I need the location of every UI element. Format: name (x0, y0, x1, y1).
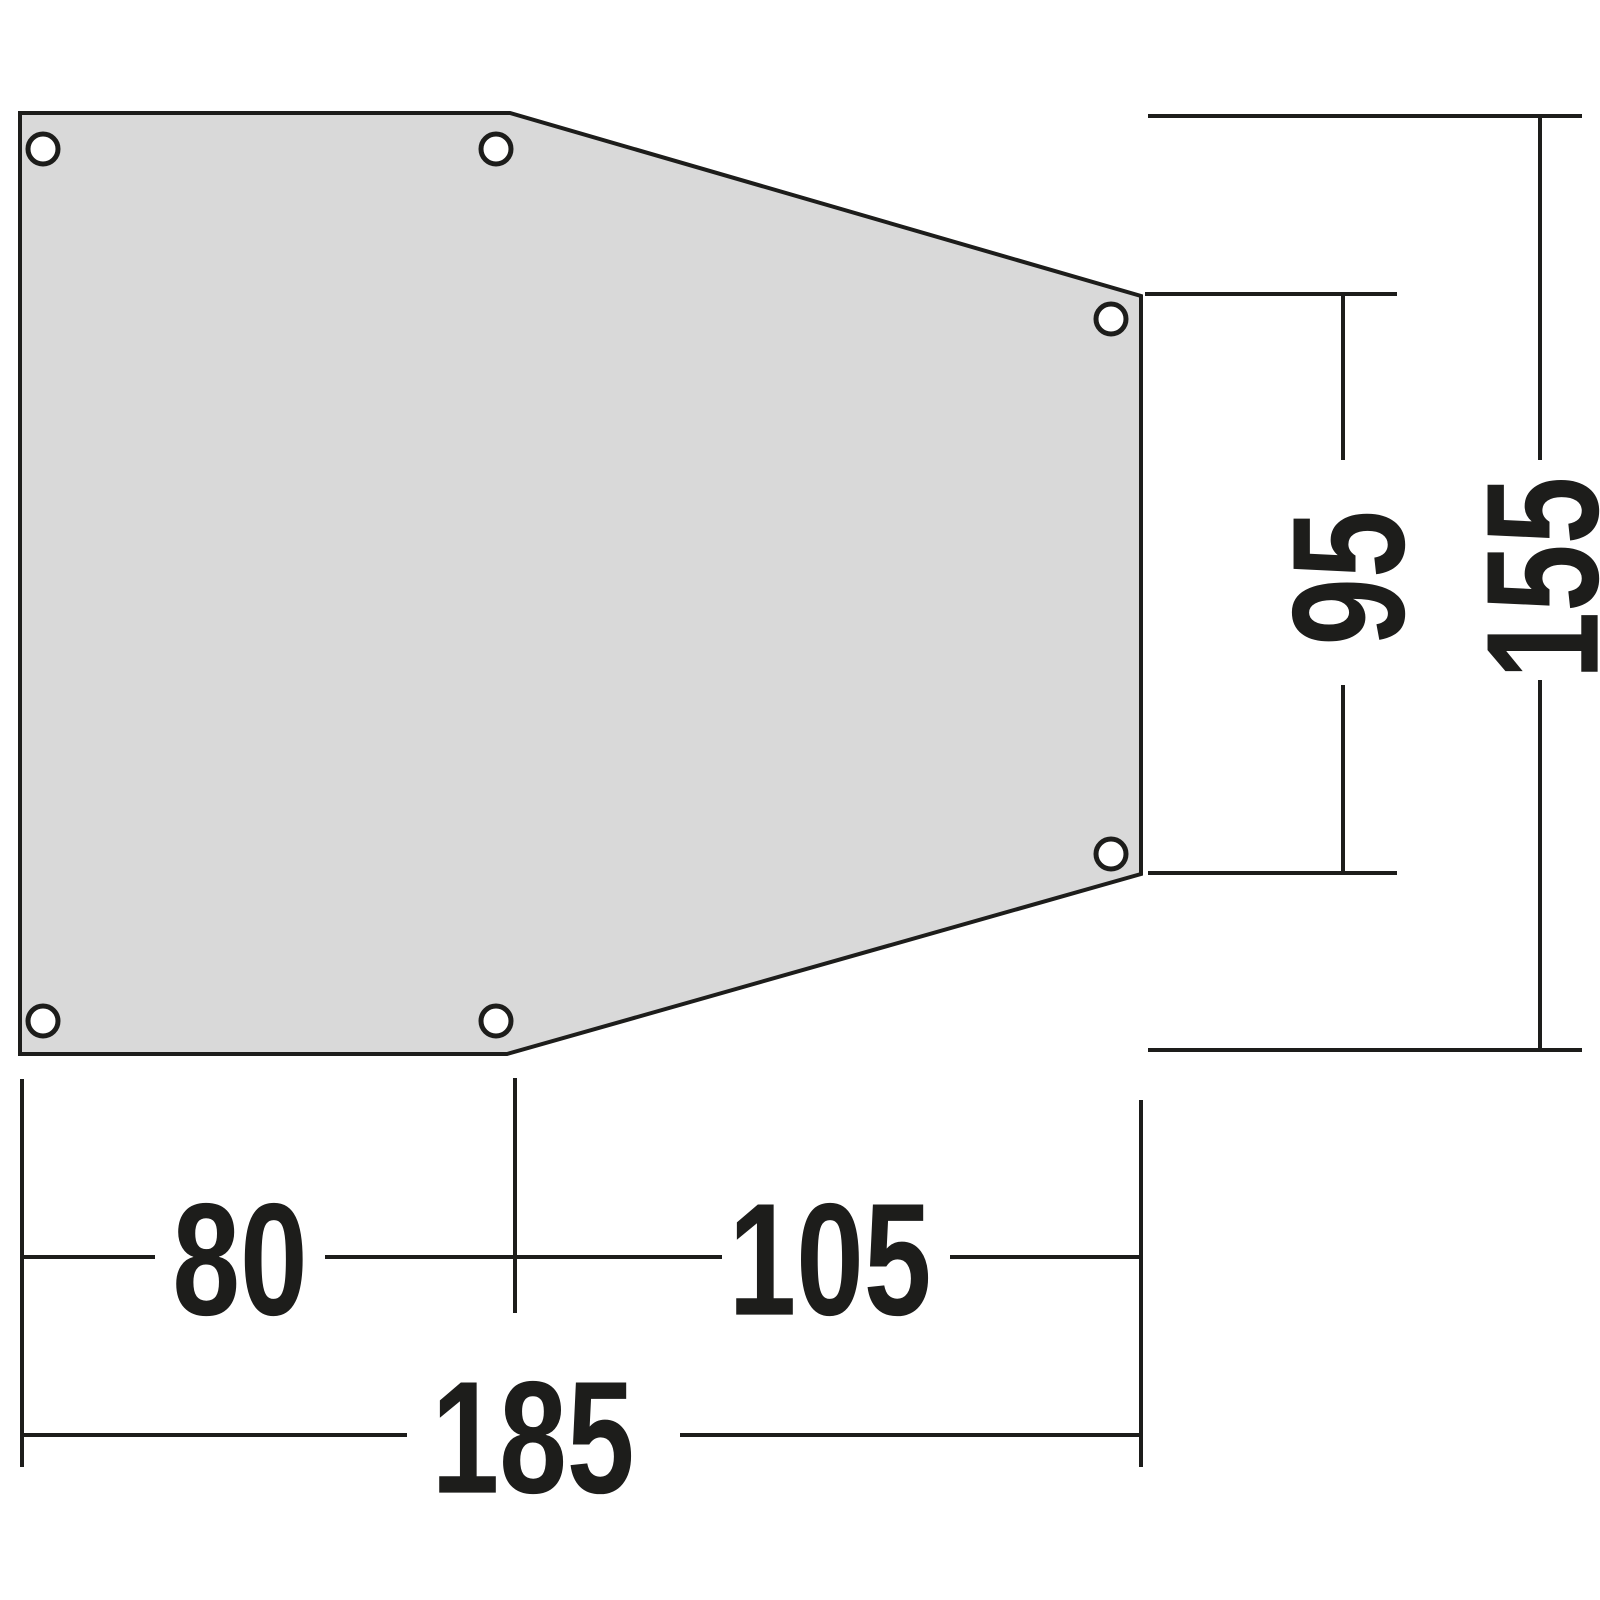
eyelet-bottom-middle-icon (481, 1006, 511, 1036)
eyelet-top-middle-icon (481, 134, 511, 164)
dim-label-width-total: 185 (432, 1348, 635, 1527)
technical-drawing-page: 155 95 80 105 185 (0, 0, 1600, 1600)
eyelet-right-bottom-icon (1096, 839, 1126, 869)
eyelet-bottom-left-icon (28, 1006, 58, 1036)
dim-height-inner-right: 95 (1145, 294, 1439, 873)
footprint-dimension-drawing: 155 95 80 105 185 (0, 0, 1600, 1600)
dim-widths-bottom: 80 105 185 (22, 1078, 1141, 1528)
dim-label-height-total: 155 (1453, 477, 1600, 680)
eyelet-right-top-icon (1096, 304, 1126, 334)
dim-label-height-inner-right: 95 (1259, 510, 1438, 645)
dim-label-width-left: 80 (172, 1170, 307, 1349)
footprint-shape (20, 113, 1141, 1054)
dim-label-width-right: 105 (729, 1170, 932, 1349)
eyelet-top-left-icon (28, 134, 58, 164)
